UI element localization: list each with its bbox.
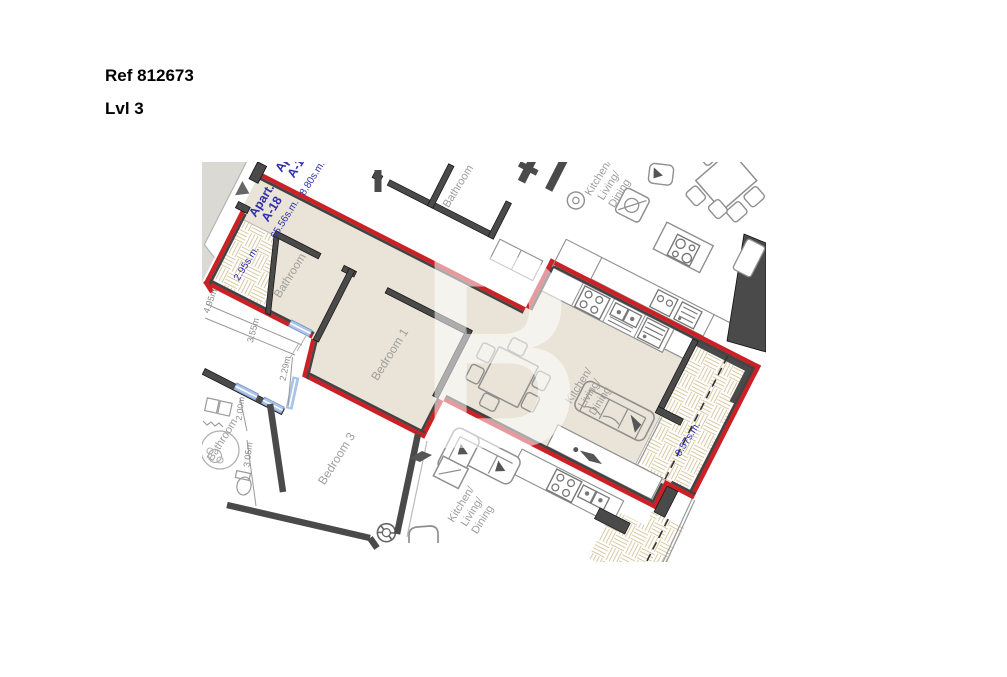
- svg-text:3.05m: 3.05m: [242, 442, 255, 468]
- svg-text:Bathroom: Bathroom: [205, 417, 240, 464]
- svg-text:B: B: [420, 197, 581, 507]
- svg-text:4.95m: 4.95m: [201, 288, 219, 315]
- svg-text:Bedroom 3: Bedroom 3: [315, 430, 358, 487]
